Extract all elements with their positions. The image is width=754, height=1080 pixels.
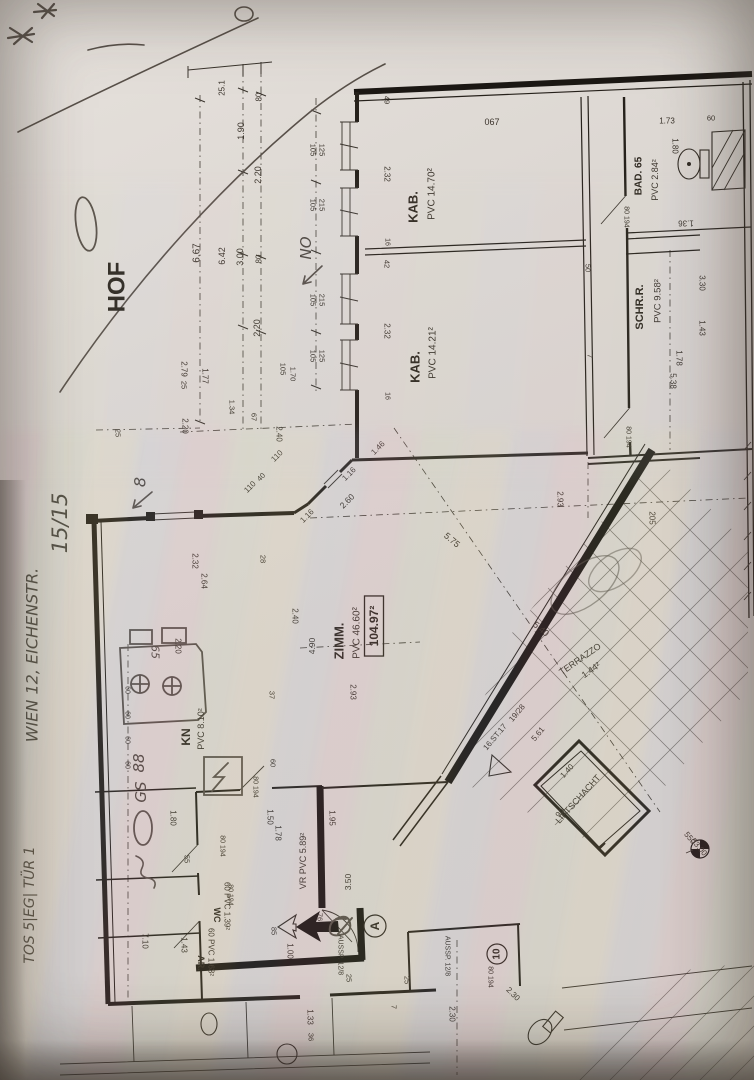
label-dim-230a: 2.30 — [504, 985, 522, 1003]
text-annotations: HOFKAB.PVC 14.70²KAB.PVC 14.21²BAD. 65PV… — [20, 80, 715, 1042]
label-pen-1515: 15/15 — [48, 493, 72, 554]
label-area-kab1: PVC 14.70² — [427, 167, 438, 219]
terrazzo-stair-grid — [380, 400, 754, 1080]
label-area-kn: PVC 8.10² — [196, 708, 206, 750]
label-pen-88: 88 — [130, 753, 148, 772]
label-dim-170: 1.70 — [289, 367, 298, 382]
label-dim-50: 50 — [584, 264, 593, 272]
label-dim-36: 36 — [307, 1033, 316, 1041]
label-pen-65: 65 — [149, 645, 162, 659]
label-dim-25d: 25 — [403, 976, 412, 984]
label-pos-a: A — [368, 921, 382, 930]
label-area-ar: 60 PVC 1.63² — [207, 928, 216, 976]
label-room-schrr: SCHR.R. — [634, 284, 646, 329]
label-dim-220a: 2.20 — [253, 166, 263, 184]
label-room-vr: VR PVC 5.89² — [298, 833, 308, 890]
label-room-wc: WC — [212, 908, 222, 923]
lift-shaft — [535, 741, 649, 855]
circle-mark-top — [235, 7, 253, 21]
label-dim-25a: 25 — [180, 381, 189, 389]
label-dim-710: 7.10 — [141, 933, 150, 949]
label-win2-a: 105 — [309, 199, 318, 212]
label-dim-lift-1: 1.40 — [558, 762, 575, 780]
label-area-zimm: PVC 46.60² — [352, 606, 363, 658]
stair-direction-triangle — [489, 755, 511, 776]
label-dim-80b: 80 — [255, 254, 264, 263]
label-win1-b: 125 — [318, 144, 327, 157]
label-room-kn: KN — [179, 728, 193, 745]
label-dim-49: 49 — [383, 96, 392, 104]
label-dim-76: 76 — [316, 913, 325, 921]
label-room-bad: BAD. 65 — [634, 156, 645, 195]
label-dim-330a: 3.30 — [698, 275, 707, 291]
label-door-haus: 80 194 — [487, 966, 494, 988]
big-o-mark — [134, 811, 152, 845]
label-dim-220d: 2.20 — [174, 638, 183, 654]
oval-near-hof — [72, 196, 99, 252]
eight-arrow — [133, 492, 152, 508]
pen-curve-2 — [60, 64, 385, 392]
label-dim-293a: 2.93 — [349, 684, 358, 700]
label-dim-7a: 7 — [586, 354, 595, 358]
label-dim-55a: 55 — [183, 855, 192, 863]
label-dim-143a: 1.43 — [698, 320, 707, 336]
label-pen-8: 8 — [131, 477, 150, 487]
label-pos-10: 10 — [492, 948, 503, 960]
label-dim-190: 1.90 — [236, 122, 246, 140]
label-num-067: 067 — [484, 117, 499, 127]
walls — [60, 74, 754, 1075]
label-dim-232a: 2.32 — [191, 553, 200, 569]
toilet-bottom-right — [523, 1011, 563, 1049]
pen-hook — [88, 44, 144, 50]
label-dim-173: 1.73 — [659, 117, 675, 126]
label-dim-16b: 16 — [384, 392, 391, 400]
label-door-schrr: 80 194 — [625, 426, 632, 448]
squiggle-kitchen — [136, 856, 155, 888]
floor-plan-drawing: HOFKAB.PVC 14.70²KAB.PVC 14.21²BAD. 65PV… — [0, 0, 754, 1080]
label-dim-293b: 2.93 — [556, 491, 565, 507]
label-total-area: 104.97² — [367, 606, 381, 647]
label-door-kn: 80 194 — [252, 776, 259, 798]
label-dim-25b: 25 — [114, 429, 123, 437]
label-dim-220c: 2.20 — [181, 418, 190, 434]
label-room-zimm: ZIMM. — [332, 623, 347, 660]
label-dim-25c: 25 — [345, 974, 354, 982]
label-dim-575: 5.75 — [442, 531, 462, 550]
label-kchain-1: 60 — [124, 686, 131, 694]
label-win2-b: 215 — [318, 199, 327, 212]
floor-plan-photo: HOFKAB.PVC 14.70²KAB.PVC 14.21²BAD. 65PV… — [0, 0, 754, 1080]
dashed-lines — [96, 70, 748, 1075]
label-aussp-2: AUSSP. 12/8 — [444, 936, 451, 976]
label-dim-37: 37 — [268, 691, 277, 699]
label-dim-178b: 1.78 — [274, 825, 283, 841]
label-dim-490: 4.90 — [307, 637, 317, 654]
label-area-schrr: PVC 9.58² — [653, 279, 664, 323]
label-dim-134: 1.34 — [228, 400, 237, 415]
label-dim-538: 5.38 — [669, 373, 678, 389]
label-dim-260: 2.60 — [338, 491, 357, 510]
label-area-bad: PVC 2.84² — [650, 159, 660, 201]
label-dim-300: 3.00 — [235, 248, 245, 266]
label-kchain-3: 60 — [124, 736, 131, 744]
label-dim-67: 67 — [250, 413, 259, 421]
label-dim-7b: 7 — [390, 1005, 399, 1009]
label-dim-146: 1.46 — [369, 439, 387, 457]
asterisk-mark-1 — [8, 28, 34, 44]
label-dim-180b: 1.80 — [169, 810, 178, 826]
label-dim-205: 205 — [648, 511, 657, 525]
label-room-kab2: KAB. — [408, 351, 423, 383]
label-dim-232c: 2.32 — [383, 323, 392, 339]
label-dim-80a: 80 — [255, 92, 264, 101]
label-dim-642: 6.42 — [217, 247, 227, 265]
label-pen-address: WIEN 12, EICHENSTR. — [23, 568, 42, 742]
label-win4-b: 125 — [318, 350, 327, 363]
label-dim-264: 2.64 — [200, 573, 209, 589]
label-dim-240b: 2.40 — [291, 608, 300, 624]
toilet-bad — [678, 149, 709, 179]
label-win4-a: 105 — [309, 350, 318, 363]
shower-bad — [712, 130, 745, 190]
no-arrow — [303, 266, 322, 284]
label-dim-110a: 110 — [269, 448, 285, 464]
label-kchain-2: 60 — [124, 711, 131, 719]
label-dim-28: 28 — [259, 555, 268, 563]
label-dim-133: 1.33 — [306, 1009, 315, 1025]
label-dim-230b: 2.30 — [448, 1006, 457, 1022]
label-dim-178a: 1.78 — [675, 350, 684, 366]
label-dim-85: 85 — [270, 927, 279, 935]
label-pen-gs: GS — [132, 781, 150, 803]
label-win1-a: 105 — [309, 144, 318, 157]
label-dim-240a: 2.40 — [275, 426, 284, 442]
label-dim-232b: 2.32 — [383, 166, 392, 182]
label-room-hof: HOF — [104, 262, 131, 313]
label-dim-110b: 110 — [242, 479, 258, 495]
label-pen-unit: TOS 5|EG| TÜR 1 — [20, 846, 38, 963]
label-door-ar: 80 194 — [227, 884, 234, 906]
label-dim-60a: 60 — [707, 114, 715, 123]
label-win3-a: 105 — [309, 294, 318, 307]
label-door-wc: 80 194 — [219, 835, 226, 857]
label-dim-105a: 105 — [279, 363, 288, 376]
label-dim-180a: 1.80 — [671, 138, 680, 154]
label-dim-42: 42 — [383, 260, 392, 268]
label-stair-ratio: 19/28 — [507, 702, 527, 724]
label-dim-143b: 1.43 — [180, 937, 189, 953]
asterisk-mark-2 — [34, 4, 56, 18]
label-area-kab2: PVC 14.21² — [428, 326, 439, 378]
label-dim-350: 3.50 — [343, 873, 353, 890]
label-dim-251: 25.1 — [218, 80, 227, 96]
label-dim-100: 1.00 — [286, 943, 295, 959]
pen-curve-1 — [18, 18, 258, 132]
label-aussp-1: AUSSP. 12/8 — [337, 935, 344, 975]
label-pen-no: NO — [297, 236, 315, 259]
label-dim-16a: 16 — [384, 238, 391, 246]
label-win3-b: 215 — [318, 294, 327, 307]
label-dim-150: 1.50 — [266, 809, 275, 825]
label-dim-136: 1.36 — [678, 219, 694, 228]
label-dim-220b: 2.20 — [252, 319, 262, 337]
label-dim-60b: 60 — [269, 759, 278, 767]
label-dim-279: 2.79 — [180, 361, 189, 377]
label-room-ar: AR. — [196, 955, 206, 971]
label-room-kab1: KAB. — [406, 191, 421, 223]
label-dim-40: 40 — [255, 471, 267, 483]
label-dim-195: 1.95 — [328, 810, 337, 826]
label-door-bad: 80 194 — [623, 206, 630, 228]
label-dim-177: 1.77 — [201, 368, 210, 384]
label-dim-667: 6.67 — [192, 243, 203, 263]
